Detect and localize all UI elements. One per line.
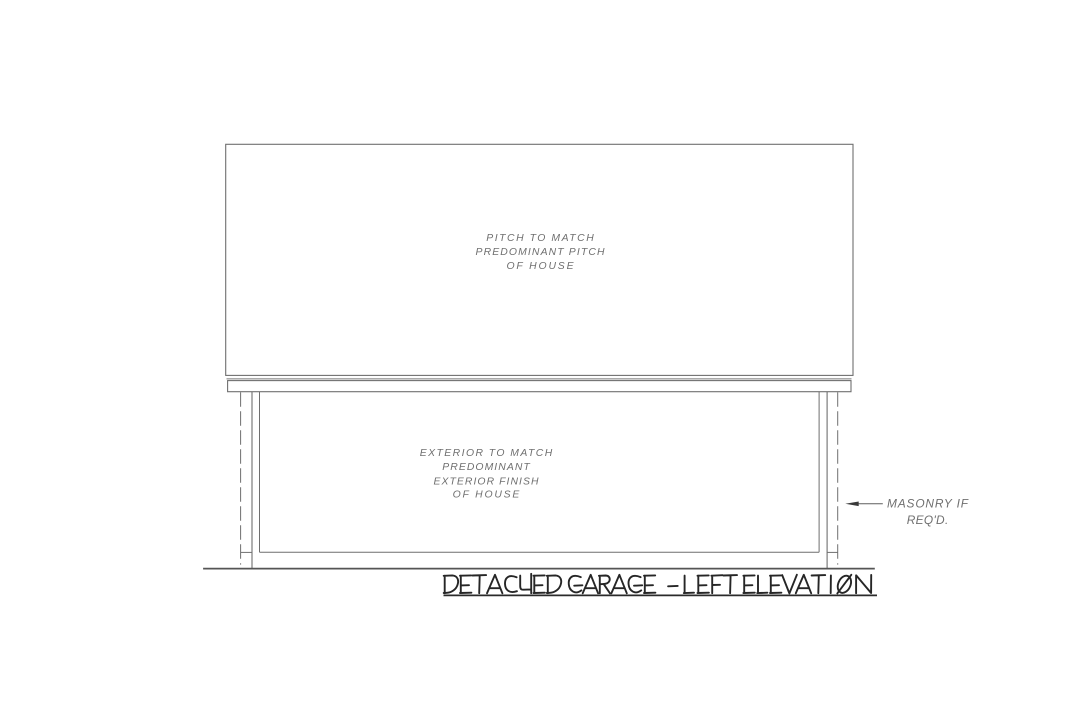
svg-text:EXTERIOR TO MATCH: EXTERIOR TO MATCH bbox=[420, 448, 553, 459]
svg-text:EXTERIOR FINISH: EXTERIOR FINISH bbox=[434, 476, 539, 487]
svg-text:REQ'D.: REQ'D. bbox=[907, 513, 949, 527]
svg-text:PREDOMINANT PITCH: PREDOMINANT PITCH bbox=[476, 247, 605, 258]
svg-text:PITCH TO MATCH: PITCH TO MATCH bbox=[486, 233, 594, 244]
svg-text:OF HOUSE: OF HOUSE bbox=[507, 261, 575, 272]
svg-text:MASONRY IF: MASONRY IF bbox=[887, 497, 969, 511]
svg-text:PREDOMINANT: PREDOMINANT bbox=[442, 462, 530, 473]
svg-text:OF HOUSE: OF HOUSE bbox=[453, 490, 521, 501]
